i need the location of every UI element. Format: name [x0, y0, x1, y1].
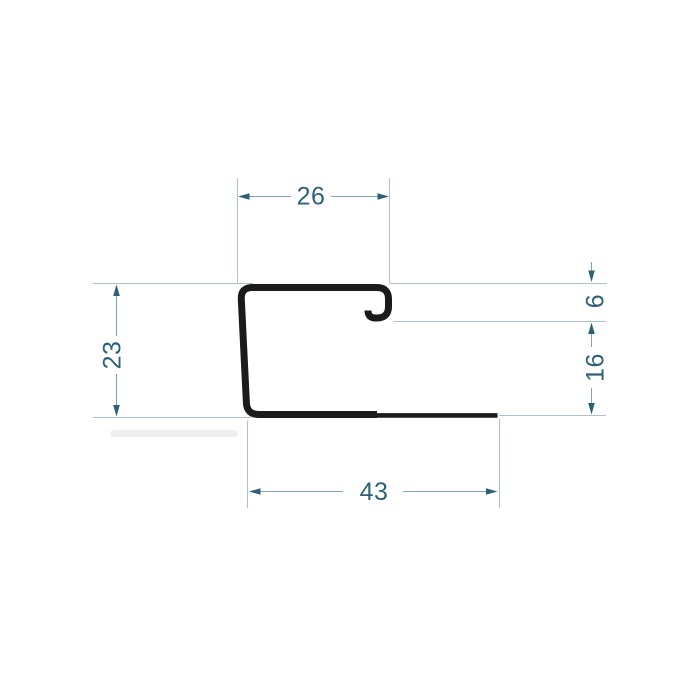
dimension-lines [117, 197, 592, 492]
arrowhead-6-down [588, 271, 595, 283]
arrowhead-23-down [113, 405, 120, 417]
dim-label-bottom-width: 43 [360, 478, 389, 506]
arrowhead-23-up [113, 285, 120, 297]
dim-label-hook-offset: 6 [582, 294, 610, 308]
scan-smudge-artifact [110, 430, 238, 437]
arrowhead-43-right [486, 488, 498, 495]
dim-label-right-inner-height: 16 [582, 353, 610, 382]
arrowhead-26-left [238, 193, 250, 200]
arrowhead-43-left [249, 488, 261, 495]
arrowhead-16-up [588, 323, 595, 335]
dimension-arrowheads [113, 193, 595, 495]
arrowhead-26-right [378, 193, 390, 200]
profile-main-path [241, 288, 388, 415]
drawing-page: 26 23 6 16 43 [0, 0, 700, 700]
technical-drawing-canvas: 26 23 6 16 43 [0, 0, 700, 700]
dimension-labels: 26 23 6 16 43 [99, 183, 610, 507]
dim-label-left-height: 23 [99, 341, 127, 370]
profile-outline [241, 288, 497, 416]
extension-lines [93, 178, 607, 508]
arrowhead-16-down [588, 403, 595, 415]
dim-label-top-width: 26 [297, 183, 326, 211]
